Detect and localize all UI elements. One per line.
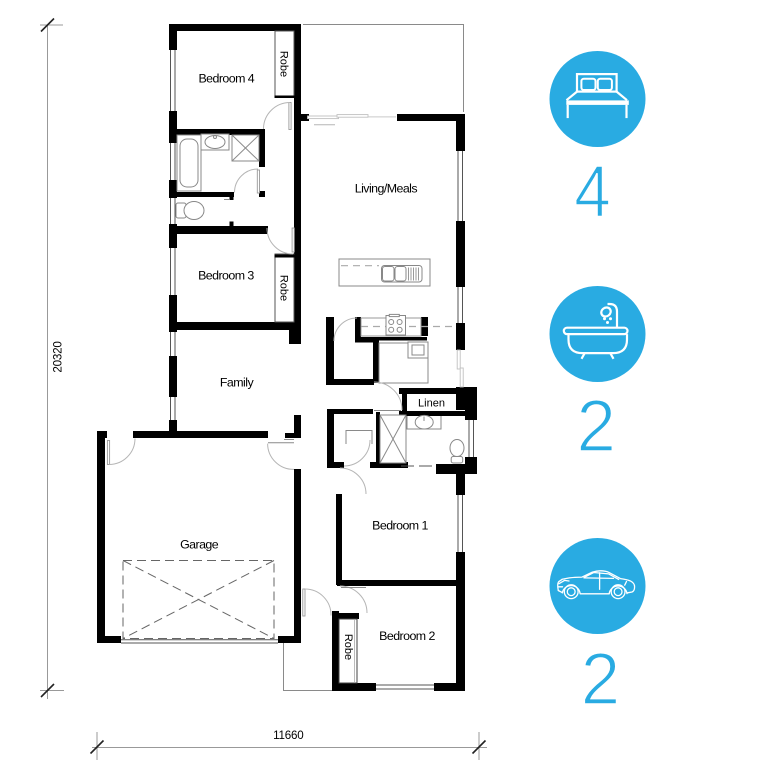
- svg-text:2: 2: [581, 639, 620, 720]
- svg-text:Linen: Linen: [418, 398, 445, 410]
- svg-text:2: 2: [577, 386, 616, 467]
- svg-text:Garage: Garage: [180, 537, 219, 551]
- svg-text:Bedroom 4: Bedroom 4: [198, 72, 254, 86]
- svg-text:Living/Meals: Living/Meals: [355, 182, 418, 196]
- svg-text:Bedroom 1: Bedroom 1: [372, 519, 428, 533]
- svg-text:11660: 11660: [273, 729, 303, 742]
- svg-text:Bedroom 3: Bedroom 3: [198, 268, 254, 282]
- svg-text:4: 4: [574, 150, 611, 232]
- svg-text:20320: 20320: [52, 341, 65, 372]
- svg-text:Robe: Robe: [278, 275, 290, 301]
- svg-text:Robe: Robe: [278, 51, 290, 77]
- svg-text:Family: Family: [220, 376, 255, 390]
- svg-text:Robe: Robe: [342, 634, 354, 660]
- svg-text:Bedroom 2: Bedroom 2: [379, 629, 435, 643]
